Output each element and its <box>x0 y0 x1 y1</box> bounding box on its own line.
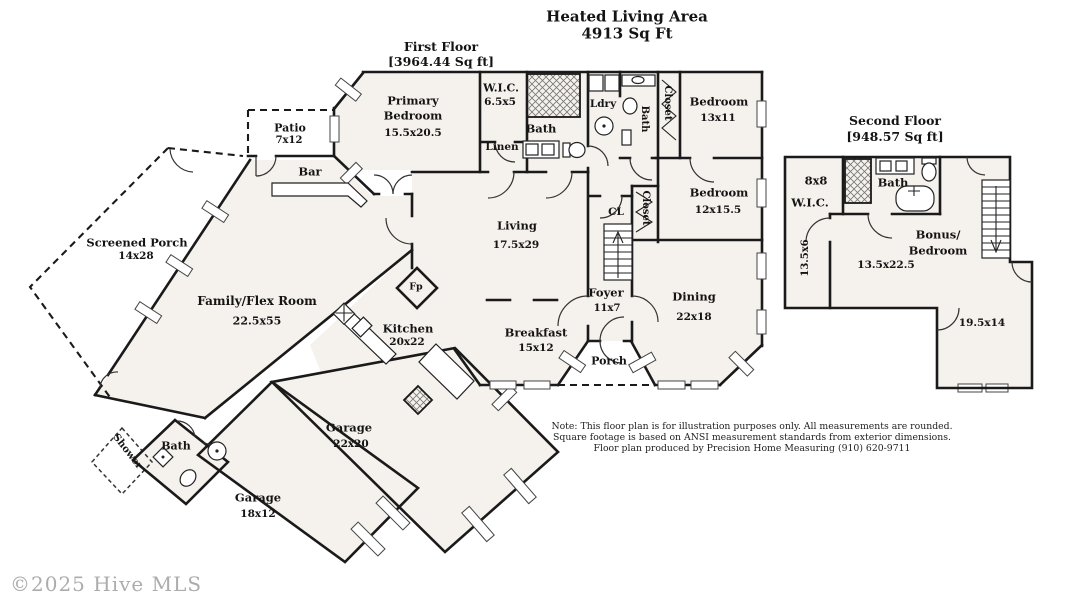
primary-shower <box>527 74 580 117</box>
fireplace-label: Fp <box>409 282 422 292</box>
upstairs-toilet <box>922 163 936 181</box>
mls-copyright: ©2025 Hive MLS <box>10 572 202 596</box>
room-label-garage-main: Garage <box>326 422 372 434</box>
room-dims-patio: 7x12 <box>276 136 303 146</box>
title-line1: Heated Living Area <box>546 10 708 25</box>
bathtub <box>896 186 934 211</box>
room-dims-screened-porch: 14x28 <box>118 251 153 262</box>
room-dims-garage-main: 22x20 <box>333 439 368 450</box>
room-label-primary-1: Primary <box>387 95 438 107</box>
room-label-garage-second: Garage <box>235 492 281 504</box>
room-dims-living: 17.5x29 <box>493 240 539 251</box>
title-line2: 4913 Sq Ft <box>581 27 672 42</box>
room-label-bar: Bar <box>298 166 321 178</box>
room-label-bonus-2: Bedroom <box>909 245 968 257</box>
room-label-kitchen: Kitchen <box>383 323 434 335</box>
room-label-dining: Dining <box>672 291 715 303</box>
dryer <box>605 75 619 91</box>
room-dims-family-flex: 22.5x55 <box>233 316 282 327</box>
washer <box>589 75 603 91</box>
room-dims-breakfast: 15x12 <box>518 343 553 354</box>
note-line3: Floor plan produced by Precision Home Me… <box>594 443 911 454</box>
floor-plan-page: Heated Living Area 4913 Sq Ft First Floo… <box>0 0 1065 615</box>
room-label-bedroom1: Bedroom <box>690 96 749 108</box>
room-dims-dining: 22x18 <box>676 312 711 323</box>
room-label-breakfast: Breakfast <box>505 327 568 339</box>
room-label-patio: Patio <box>274 123 306 134</box>
hall-bath-toilet <box>623 98 637 114</box>
room-dims-bonus: 13.5x22.5 <box>857 260 914 271</box>
second-floor-heading: Second Floor <box>849 115 941 128</box>
room-dims-wic2: 8x8 <box>805 175 828 187</box>
room-dims-garage-second: 18x12 <box>240 509 275 520</box>
stairs-first-floor <box>604 224 632 280</box>
room-label-bath2f: Bath <box>878 177 909 189</box>
hall-bath-sink <box>622 130 631 145</box>
room-label-primary-2: Bedroom <box>384 110 443 122</box>
room-label-bonus-1: Bonus/ <box>916 229 961 241</box>
room-label-porch: Porch <box>591 356 627 367</box>
room-dims-rear-room: 19.5x14 <box>959 318 1005 329</box>
room-label-foyer: Foyer <box>588 287 623 299</box>
room-label-family-flex: Family/Flex Room <box>197 295 317 307</box>
room-label-bedroom2: Bedroom <box>690 187 749 199</box>
stairs-second-floor <box>982 180 1010 258</box>
room-label-screened-porch: Screened Porch <box>86 237 187 249</box>
room-dims-hall2: 13.5x6 <box>801 239 811 276</box>
room-dims-wic: 6.5x5 <box>484 97 516 108</box>
room-label-wic: W.I.C. <box>483 83 519 94</box>
upstairs-shower <box>845 159 871 203</box>
room-label-living: Living <box>497 220 537 232</box>
note-line1: Note: This floor plan is for illustratio… <box>551 421 952 432</box>
first-floor-sqft: [3964.44 Sq ft] <box>388 56 494 69</box>
room-label-wic2: W.I.C. <box>791 197 828 209</box>
room-label-closet-bedroom2: Closet <box>640 190 650 225</box>
room-label-closet-bedroom1: Closet <box>662 85 672 120</box>
second-floor-sqft: [948.57 Sq ft] <box>846 131 943 144</box>
room-dims-bedroom1: 13x11 <box>700 113 735 124</box>
room-label-bath-primary: Bath <box>526 123 557 135</box>
room-label-laundry: Ldry <box>590 99 616 110</box>
room-label-bath-hall: Bath <box>639 106 649 133</box>
room-label-bath-garage: Bath <box>161 441 191 452</box>
room-dims-primary: 15.5x20.5 <box>384 128 441 139</box>
floor-plan-drawing <box>0 0 1065 615</box>
room-dims-kitchen: 20x22 <box>389 337 424 348</box>
room-dims-foyer: 11x7 <box>594 304 621 314</box>
first-floor-heading: First Floor <box>404 41 478 54</box>
room-label-linen: Linen <box>485 142 518 153</box>
room-label-hall-closet: CL <box>608 207 624 218</box>
note-line2: Square footage is based on ANSI measurem… <box>553 432 951 443</box>
room-dims-bedroom2: 12x15.5 <box>695 205 741 216</box>
toilet <box>569 143 585 158</box>
